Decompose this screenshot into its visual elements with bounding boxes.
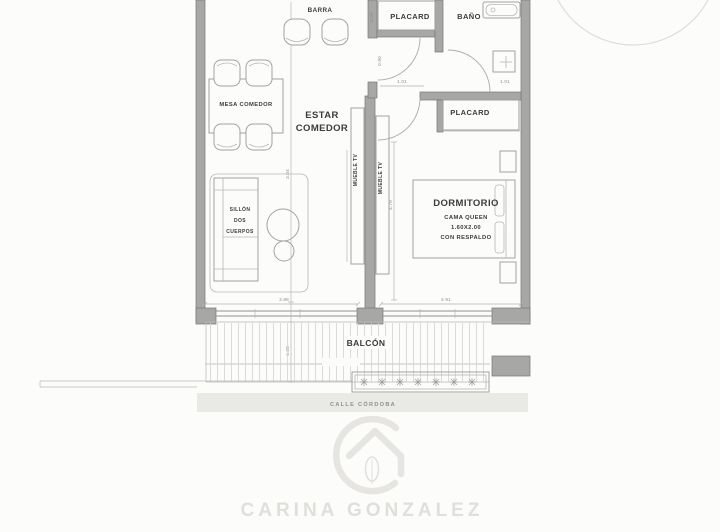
estar-label-2: COMEDOR [296, 123, 348, 134]
dining-chair [214, 60, 240, 86]
wall-bano-left [435, 0, 443, 52]
wall-placard-bottom [377, 30, 435, 37]
barra-label: BARRA [308, 7, 333, 14]
balcon-label: BALCÓN [347, 337, 386, 348]
mesa-comedor-label: MESA COMEDOR [219, 102, 273, 108]
side-table-large [267, 209, 299, 241]
watermark-logo [336, 419, 401, 491]
balcony [205, 322, 530, 382]
dim-door-hall: 1.01 [397, 79, 407, 84]
sillon-label-1: SILLÓN [230, 205, 251, 213]
sillon-label-2: DOS [234, 218, 246, 224]
wall-right [521, 0, 530, 324]
nightstand-bottom [500, 262, 516, 283]
placard-top-label: PLACARD [390, 12, 430, 21]
door-arc-dormitorio [378, 98, 420, 140]
bathroom-fixtures [483, 2, 520, 72]
wall-left [196, 0, 205, 322]
dormitorio-label: DORMITORIO [433, 198, 499, 209]
floor-plan-drawing: PLACARD BAÑO PLACARD BARRA MESA COMEDOR … [0, 0, 720, 532]
mueble-tv-label-left: MUEBLE TV [353, 153, 359, 186]
nightstand-top [500, 151, 516, 172]
bathtub-drain [491, 8, 495, 12]
mueble-tv-label-right: MUEBLE TV [378, 161, 384, 194]
wall-bano-bottom [420, 92, 521, 100]
bano-label: BAÑO [457, 12, 481, 21]
window-lines [216, 309, 492, 318]
dining-chair [246, 60, 272, 86]
bed-label-2: 1.60X2.00 [451, 225, 481, 231]
dim-door-bano: 1.01 [500, 79, 510, 84]
pier-right [492, 308, 530, 324]
watermark-name: CARINA GONZALEZ [241, 500, 484, 521]
dim-estar-width: 3.88 [279, 297, 289, 302]
balcony-corner-right [492, 356, 530, 376]
door-arc-bano [448, 50, 490, 92]
wall-hall-stub [368, 82, 377, 98]
bed-label-3: CON RESPALDO [440, 235, 491, 241]
balcony-hatch [206, 323, 489, 382]
bed-label-1: CAMA QUEEN [444, 215, 487, 221]
dim-hall-width: 0.90 [377, 56, 382, 66]
dim-dorm-length: 4.79 [388, 200, 393, 210]
floor-plan-page: PLACARD BAÑO PLACARD BARRA MESA COMEDOR … [0, 0, 720, 532]
logo-g-arc [336, 419, 396, 491]
door-arcs [378, 38, 490, 140]
pier-left [196, 308, 216, 324]
living-set [210, 174, 308, 292]
sink [493, 51, 515, 72]
estar-label-1: ESTAR [305, 110, 339, 121]
rug [210, 174, 308, 292]
dim-dorm-width: 2.91 [441, 297, 451, 302]
dim-placard-depth: 0.60 [369, 12, 374, 22]
dining-chair [214, 124, 240, 150]
dining-chair [246, 124, 272, 150]
dim-estar-length: 3.04 [285, 169, 290, 179]
street-label: CALLE CÓRDOBA [330, 400, 396, 408]
placard2-label: PLACARD [450, 108, 490, 117]
wall-placard2-left [437, 100, 443, 132]
sillon-label-3: CUERPOS [226, 229, 254, 235]
door-arc-hall [378, 38, 420, 80]
faint-watermark-circle [548, 0, 718, 45]
pier-center [357, 308, 383, 324]
wall-center-tv [365, 96, 375, 312]
